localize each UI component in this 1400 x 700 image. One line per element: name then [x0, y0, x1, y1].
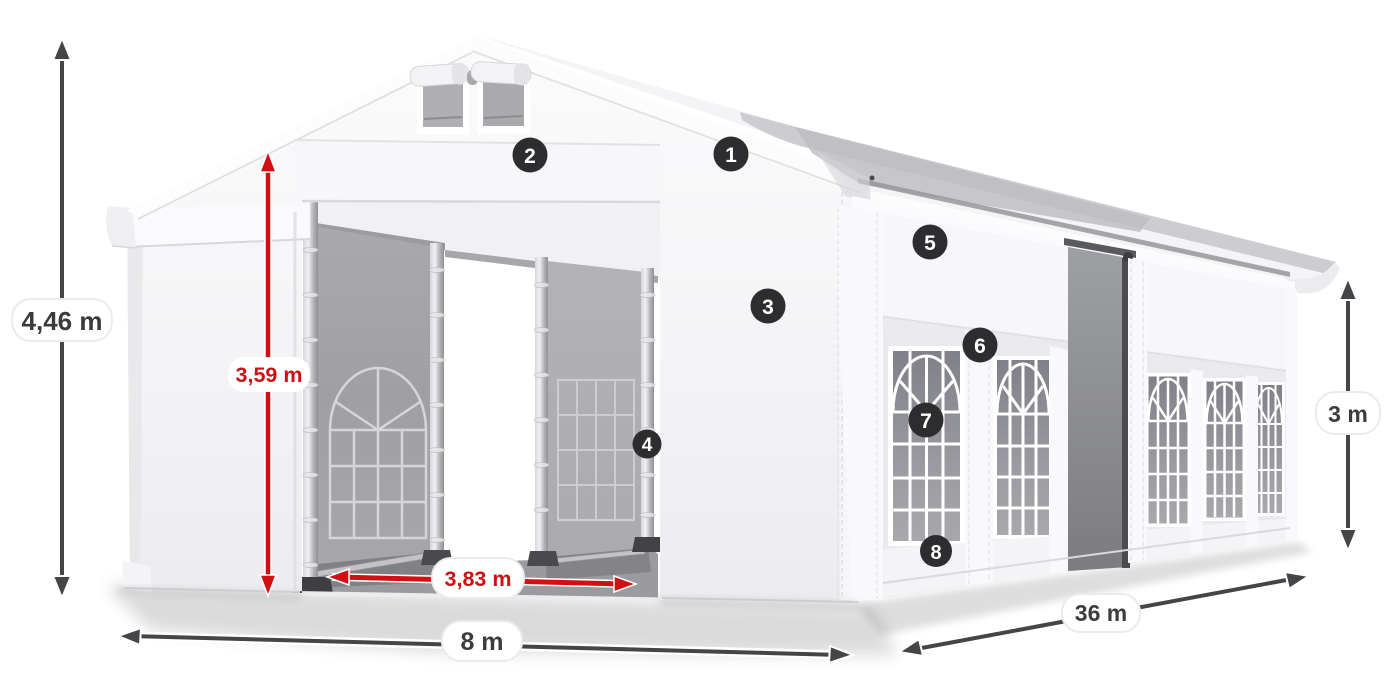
- svg-text:4,46 m: 4,46 m: [22, 306, 103, 336]
- svg-text:1: 1: [725, 144, 737, 167]
- svg-text:3 m: 3 m: [1328, 401, 1368, 427]
- svg-text:4: 4: [642, 435, 653, 456]
- svg-text:7: 7: [920, 410, 932, 433]
- svg-text:36 m: 36 m: [1075, 600, 1127, 626]
- svg-text:2: 2: [524, 145, 536, 168]
- svg-text:6: 6: [974, 335, 986, 358]
- svg-text:8: 8: [930, 542, 941, 564]
- svg-text:3,83 m: 3,83 m: [445, 567, 512, 591]
- svg-text:5: 5: [924, 232, 936, 255]
- svg-text:3,59 m: 3,59 m: [236, 363, 303, 387]
- svg-text:3: 3: [762, 296, 774, 319]
- svg-text:8 m: 8 m: [460, 628, 503, 656]
